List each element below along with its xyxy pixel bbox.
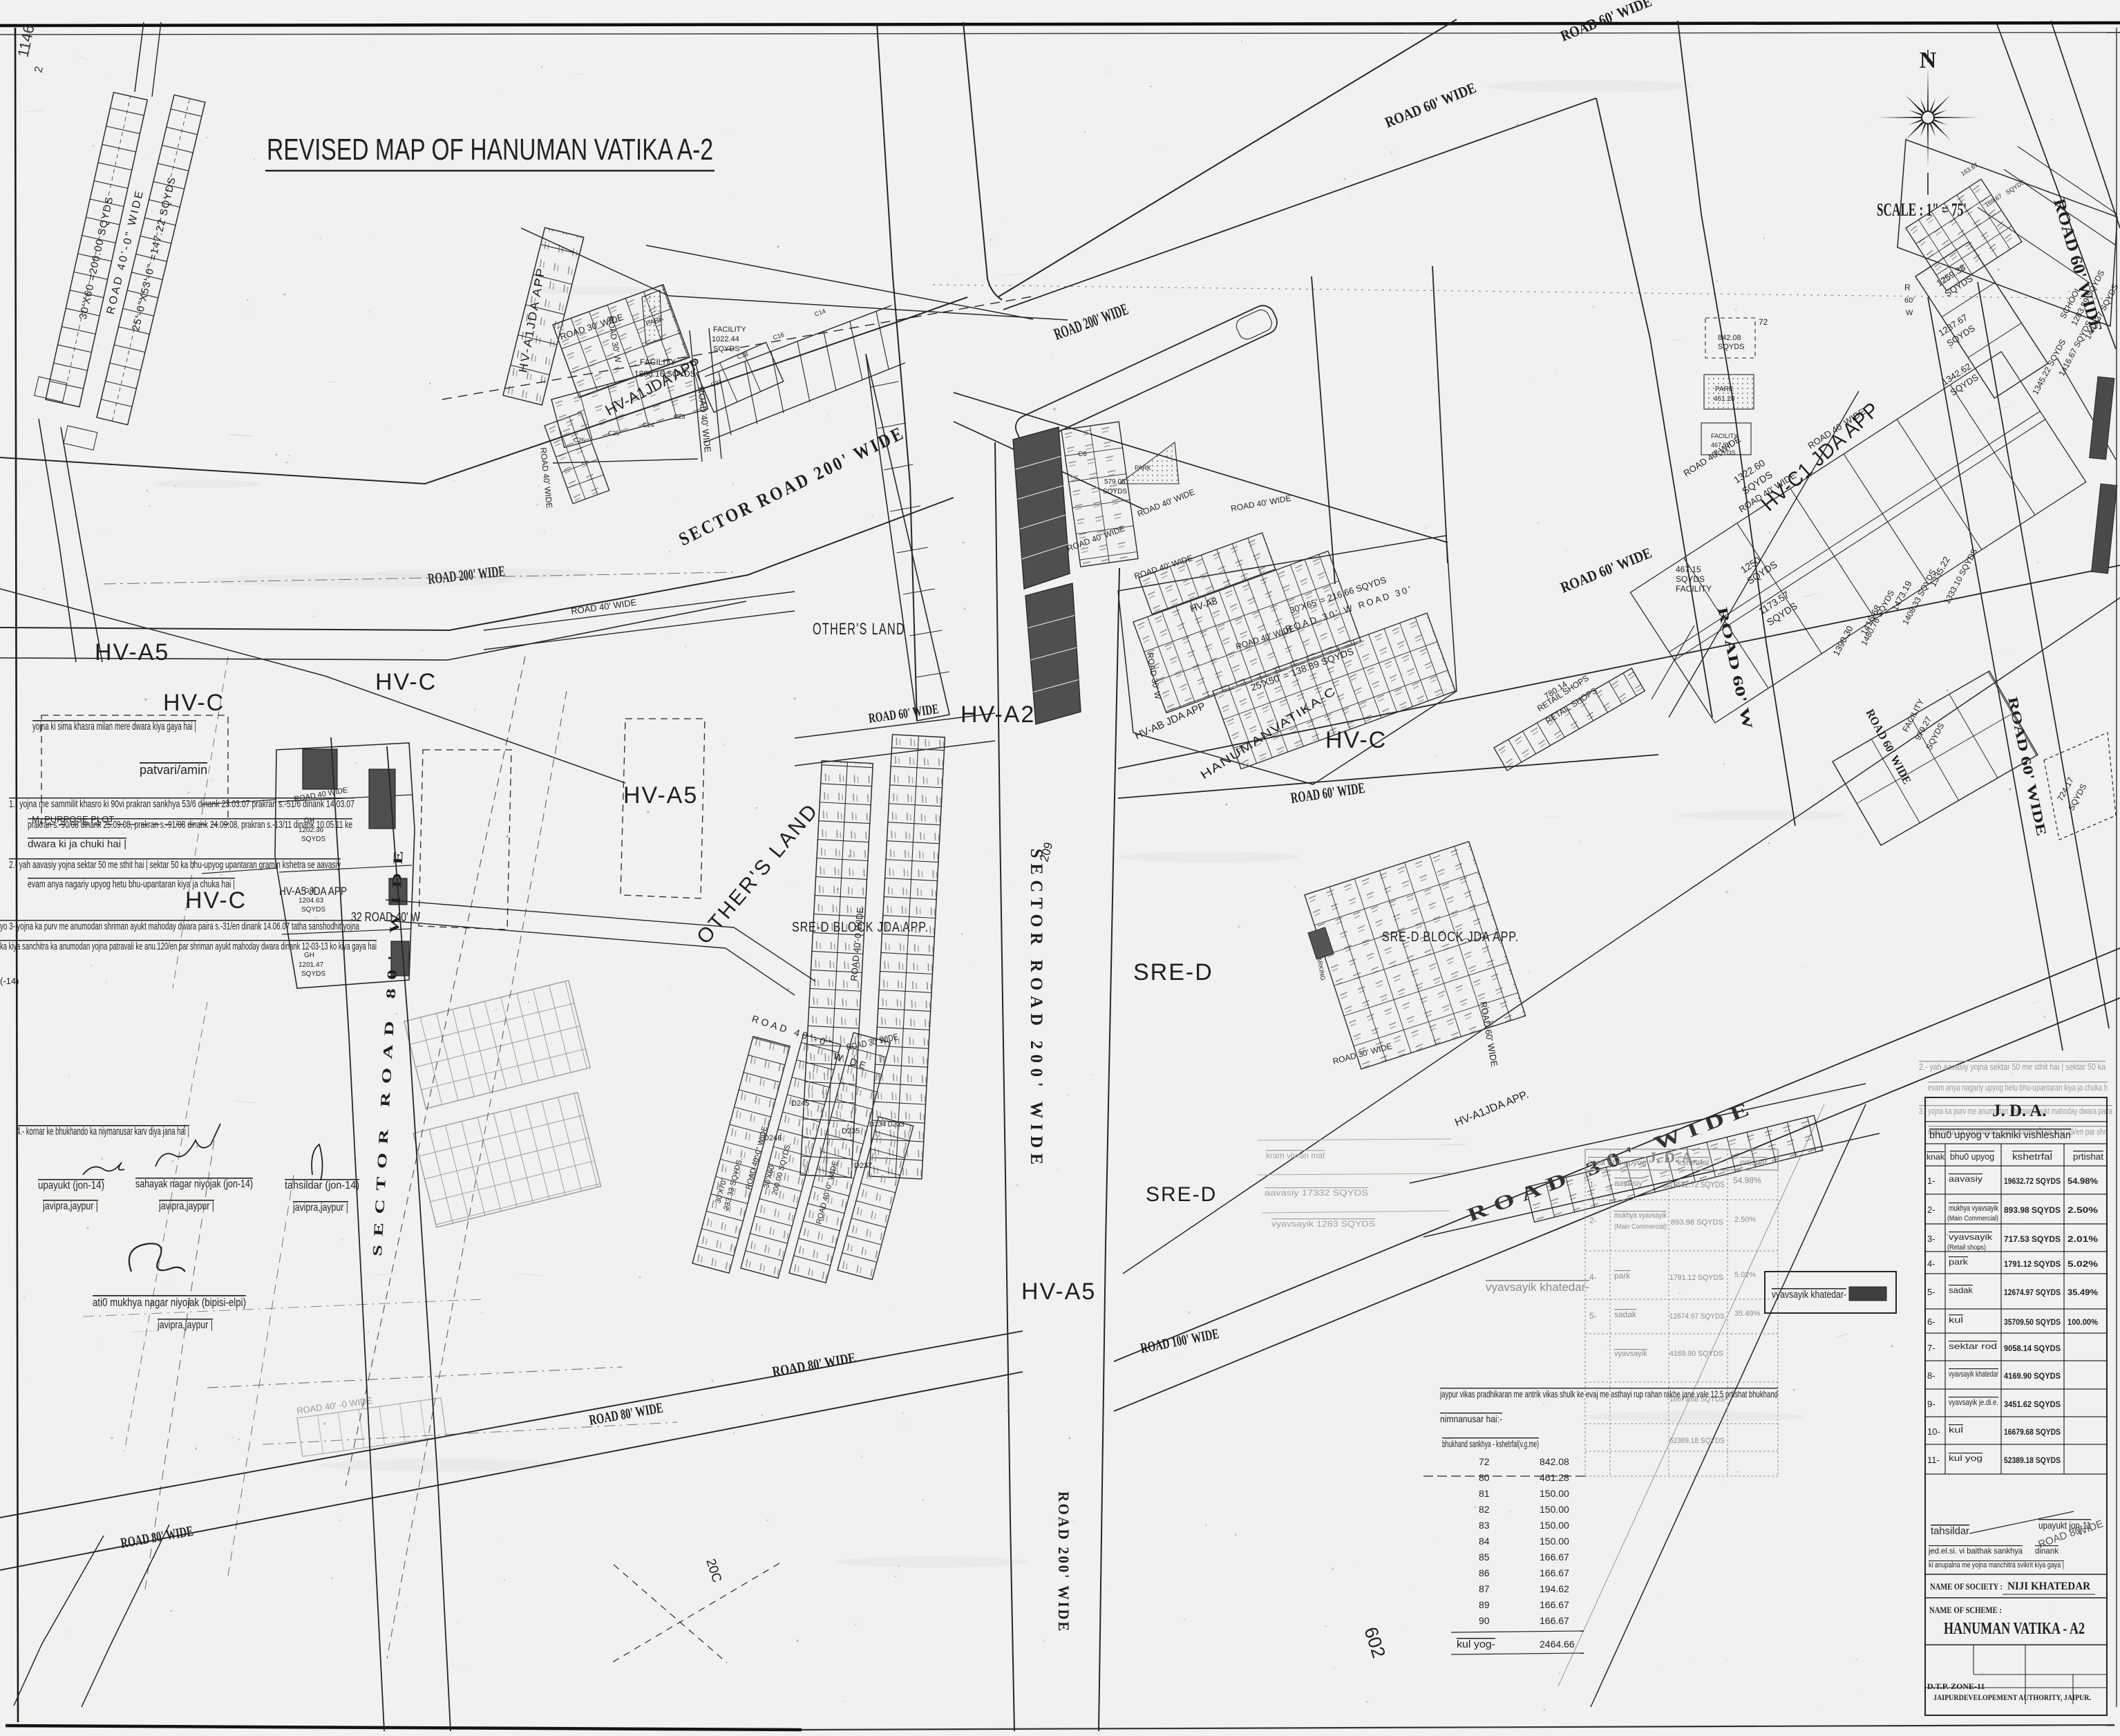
svg-text:2464.66: 2464.66 — [1540, 1639, 1575, 1650]
svg-text:(-14): (-14) — [0, 976, 19, 986]
svg-text:1022.44: 1022.44 — [712, 335, 739, 343]
svg-text:85: 85 — [1479, 1551, 1490, 1563]
svg-text:vyavsayik: vyavsayik — [1614, 1350, 1647, 1358]
svg-text:knak: knak — [1927, 1152, 1945, 1162]
svg-text:2.50%: 2.50% — [2067, 1205, 2098, 1215]
svg-text:sadak: sadak — [1614, 1310, 1637, 1319]
svg-text:54.98%: 54.98% — [1733, 1176, 1761, 1185]
svg-text:717.53 SQYDS: 717.53 SQYDS — [2004, 1234, 2061, 1244]
svg-text:NIJI KHATEDAR: NIJI KHATEDAR — [2007, 1581, 2090, 1592]
svg-text:89: 89 — [1479, 1599, 1490, 1610]
svg-text:D246: D246 — [764, 1134, 782, 1142]
svg-text:JAIPURDEVELOPEMENT AUTHORITY,: JAIPURDEVELOPEMENT AUTHORITY, JAIPUR. — [1933, 1692, 2091, 1702]
svg-text:knak bhu upyog: knak bhu upyog — [1588, 1158, 1647, 1167]
svg-text:5.02%: 5.02% — [1734, 1271, 1756, 1279]
svg-text:52389.18 SQYDS: 52389.18 SQYDS — [1669, 1437, 1725, 1445]
svg-text:kul: kul — [1949, 1315, 1963, 1325]
svg-text:ka kiya sanchitra ka anumodan: ka kiya sanchitra ka anumodan yojna patr… — [0, 941, 377, 952]
svg-text:FACILITY: FACILITY — [1676, 584, 1712, 594]
svg-text:dwara ki ja chuki hai |: dwara ki ja chuki hai | — [28, 838, 126, 850]
svg-text:prtishat: prtishat — [2073, 1151, 2103, 1162]
svg-text:D237: D237 — [854, 1162, 872, 1170]
svg-text:35709.50 SQYDS: 35709.50 SQYDS — [2004, 1317, 2061, 1327]
svg-text:NAME OF SCHEME :: NAME OF SCHEME : — [1929, 1605, 2002, 1615]
svg-text:150.00: 150.00 — [1540, 1504, 1569, 1515]
svg-text:SQYDS: SQYDS — [301, 906, 325, 914]
svg-text:kram vivran mat: kram vivran mat — [1266, 1151, 1325, 1160]
svg-text:(Main Commercial): (Main Commercial) — [1947, 1215, 1998, 1223]
svg-text:vyavsayik khatedar-: vyavsayik khatedar- — [1772, 1289, 1846, 1301]
svg-text:C24: C24 — [643, 422, 654, 428]
svg-text:javipra,jaypur |: javipra,jaypur | — [292, 1202, 348, 1214]
svg-text:jaypur vikas pradhikaran me an: jaypur vikas pradhikaran me antrik vikas… — [1439, 1388, 1778, 1399]
svg-text:vyavsayik khatedar: vyavsayik khatedar — [1949, 1369, 1998, 1379]
svg-text:6-: 6- — [1927, 1317, 1936, 1327]
svg-text:W: W — [1906, 309, 1913, 317]
svg-text:2-: 2- — [1589, 1216, 1597, 1225]
svg-text:javipra,jaypur |: javipra,jaypur | — [42, 1200, 98, 1212]
svg-text:150.00: 150.00 — [1540, 1536, 1569, 1547]
svg-text:javipra,jaypur |: javipra,jaypur | — [157, 1319, 213, 1331]
svg-text:tahsildar: tahsildar — [1931, 1525, 1969, 1537]
svg-text:SQYDS: SQYDS — [301, 970, 325, 978]
svg-text:kul yog: kul yog — [1949, 1453, 1982, 1463]
svg-text:HV-C: HV-C — [1325, 727, 1387, 753]
svg-text:5-: 5- — [1927, 1287, 1936, 1297]
svg-text:D245: D245 — [791, 1100, 809, 1108]
svg-text:sadak: sadak — [1949, 1285, 1974, 1295]
svg-text:C23: C23 — [674, 413, 685, 420]
svg-text:4169.90 SQYDS: 4169.90 SQYDS — [1669, 1350, 1723, 1358]
svg-text:dinank: dinank — [2035, 1546, 2059, 1556]
svg-text:87: 87 — [1479, 1583, 1490, 1594]
svg-text:1791.12 SQYDS: 1791.12 SQYDS — [1669, 1274, 1723, 1282]
svg-text:mukhya vyavsayik: mukhya vyavsayik — [1949, 1203, 1999, 1213]
svg-text:evam anya nagariy upyog hetu b: evam anya nagariy upyog hetu bhu-upantar… — [28, 878, 235, 890]
svg-text:842.08: 842.08 — [1718, 334, 1741, 342]
svg-text:461.28: 461.28 — [1714, 395, 1735, 403]
svg-text:N: N — [1920, 48, 1937, 73]
svg-text:893.98 SQYDS: 893.98 SQYDS — [1671, 1218, 1723, 1227]
svg-text:FACILITY: FACILITY — [713, 325, 746, 334]
svg-text:54.98%: 54.98% — [2067, 1176, 2098, 1186]
svg-text:2.- yah aavasiy yojna sektar 5: 2.- yah aavasiy yojna sektar 50 me sthit… — [1919, 1062, 2106, 1072]
svg-text:vyavsayik je.di.e.: vyavsayik je.di.e. — [1949, 1397, 1998, 1407]
svg-text:REVISED MAP OF HANUMAN VATIKA: REVISED MAP OF HANUMAN VATIKA A-2 — [267, 133, 713, 167]
svg-text:166.67: 166.67 — [1540, 1551, 1569, 1563]
svg-text:C26: C26 — [574, 437, 585, 444]
svg-text:yojna ki sima khasra milan mer: yojna ki sima khasra milan mere dwara ki… — [32, 721, 196, 733]
svg-text:3-: 3- — [1927, 1234, 1936, 1244]
svg-text:90: 90 — [1479, 1615, 1490, 1626]
svg-text:84: 84 — [1479, 1536, 1490, 1547]
svg-text:sektar rod: sektar rod — [1949, 1341, 1997, 1351]
svg-text:81: 81 — [1479, 1488, 1490, 1499]
svg-text:SQYDS: SQYDS — [1103, 488, 1127, 496]
svg-text:D.T.P. ZONE-11: D.T.P. ZONE-11 — [1927, 1681, 1985, 1691]
svg-text:SRE-D BLOCK JDA APP.: SRE-D BLOCK JDA APP. — [1382, 930, 1519, 945]
svg-text:82: 82 — [1479, 1504, 1490, 1515]
svg-text:kul yog-: kul yog- — [1457, 1639, 1495, 1650]
svg-text:83: 83 — [1479, 1520, 1490, 1531]
svg-text:park: park — [1949, 1257, 1969, 1267]
svg-text:ati0 mukhya nagar niyojak (bip: ati0 mukhya nagar niyojak (bipisi-elpi) — [93, 1296, 246, 1309]
svg-text:vyavsayik 1283 SQYDS: vyavsayik 1283 SQYDS — [1271, 1219, 1375, 1229]
svg-text:166.67: 166.67 — [1540, 1567, 1569, 1578]
svg-text:sahayak nagar niyojak (jon-14): sahayak nagar niyojak (jon-14) — [135, 1178, 253, 1190]
svg-text:prakran s.-90/08 dinank 25.09.: prakran s.-90/08 dinank 25.09.08, prakra… — [28, 819, 352, 831]
svg-text:166.67: 166.67 — [1540, 1615, 1569, 1626]
svg-text:4-: 4- — [1589, 1272, 1597, 1282]
svg-text:mukhya vyavsayik: mukhya vyavsayik — [1614, 1211, 1667, 1220]
svg-text:HV-A5: HV-A5 — [95, 639, 169, 666]
svg-text:10-: 10- — [1927, 1426, 1940, 1437]
svg-text:893.98 SQYDS: 893.98 SQYDS — [2004, 1205, 2061, 1215]
svg-text:vyavsayik khatedar-: vyavsayik khatedar- — [1486, 1281, 1589, 1294]
svg-text:12674.97 SQYDS: 12674.97 SQYDS — [1669, 1312, 1725, 1321]
svg-text:ROAD 200' WIDE: ROAD 200' WIDE — [1055, 1491, 1072, 1633]
svg-text:9-: 9- — [1927, 1399, 1936, 1409]
svg-text:60': 60' — [1904, 296, 1914, 305]
svg-text:evam anya nagariy upyog hetu b: evam anya nagariy upyog hetu bhu-upantar… — [1928, 1082, 2108, 1093]
svg-text:35.49%: 35.49% — [2067, 1287, 2098, 1297]
svg-text:4-: 4- — [1927, 1258, 1936, 1269]
svg-text:7-: 7- — [1927, 1343, 1936, 1353]
svg-text:150.00: 150.00 — [1540, 1520, 1569, 1531]
svg-text:vyavsayik: vyavsayik — [1949, 1232, 1993, 1242]
svg-text:194.62: 194.62 — [1540, 1583, 1569, 1594]
svg-text:OTHER'S LAND: OTHER'S LAND — [813, 620, 905, 639]
svg-text:D234 D233: D234 D233 — [869, 1121, 905, 1129]
svg-text:1791.12 SQYDS: 1791.12 SQYDS — [2004, 1259, 2061, 1269]
svg-text:5.02%: 5.02% — [2067, 1259, 2098, 1269]
svg-text:SRE-D: SRE-D — [1133, 959, 1213, 985]
svg-text:kshetrfal: kshetrfal — [1678, 1158, 1709, 1167]
svg-text:16679.68 SQYDS: 16679.68 SQYDS — [2004, 1427, 2061, 1437]
svg-text:javipra,jaypur |: javipra,jaypur | — [158, 1200, 214, 1212]
svg-text:aavasiy: aavasiy — [1614, 1178, 1643, 1188]
svg-text:kul: kul — [1949, 1425, 1963, 1435]
svg-text:tahsildar (jon-14): tahsildar (jon-14) — [285, 1180, 359, 1191]
svg-text:1.- yojna me sammilit khasro k: 1.- yojna me sammilit khasro ki 90vi pra… — [9, 798, 354, 810]
svg-text:bhu0 upyog: bhu0 upyog — [1950, 1151, 1994, 1162]
svg-text:D235: D235 — [842, 1127, 860, 1135]
svg-text:HV-C: HV-C — [375, 669, 437, 695]
svg-text:1-: 1- — [1589, 1180, 1597, 1189]
svg-text:842.08: 842.08 — [1540, 1456, 1569, 1467]
svg-text:GH: GH — [304, 952, 314, 959]
svg-text:19632.72 SQYDS: 19632.72 SQYDS — [1669, 1180, 1725, 1189]
svg-text:HV-A5: HV-A5 — [1021, 1279, 1096, 1305]
svg-text:72: 72 — [1759, 317, 1768, 327]
svg-text:SRE-D: SRE-D — [1146, 1183, 1217, 1206]
svg-text:HV-C: HV-C — [163, 690, 225, 716]
svg-text:52389.18 SQYDS: 52389.18 SQYDS — [2004, 1455, 2061, 1465]
svg-text:8-: 8- — [1927, 1370, 1936, 1381]
svg-text:5-: 5- — [1589, 1311, 1597, 1321]
svg-text:R: R — [1904, 283, 1911, 292]
svg-text:J. D. A.: J. D. A. — [1992, 1102, 2046, 1120]
svg-text:HV-A2: HV-A2 — [960, 701, 1035, 728]
svg-text:SECTOR ROAD 200' WIDE: SECTOR ROAD 200' WIDE — [1027, 849, 1045, 1170]
svg-text:patvari/amin: patvari/amin — [140, 763, 207, 777]
svg-text:HV-A5 JDA APP: HV-A5 JDA APP — [279, 885, 347, 898]
svg-text:C25: C25 — [608, 430, 620, 437]
svg-text:HV-C: HV-C — [185, 887, 247, 914]
svg-text:12674.97 SQYDS: 12674.97 SQYDS — [2004, 1287, 2061, 1297]
svg-text:SQYDS: SQYDS — [1676, 574, 1705, 584]
svg-text:NAME OF SOCIETY :: NAME OF SOCIETY : — [1930, 1581, 2003, 1592]
svg-text:PARK: PARK — [1715, 386, 1734, 393]
svg-text:35.49%: 35.49% — [1734, 1310, 1761, 1318]
svg-text:FACILITY: FACILITY — [640, 357, 676, 367]
svg-text:SQYDS: SQYDS — [301, 836, 325, 843]
svg-text:prtishat: prtishat — [1740, 1158, 1768, 1167]
svg-text:19632.72 SQYDS: 19632.72 SQYDS — [2004, 1176, 2061, 1186]
svg-text:C6: C6 — [1078, 451, 1087, 458]
svg-text:bhu0 upyog v takniki vishlesha: bhu0 upyog v takniki vishleshan — [1929, 1129, 2071, 1141]
svg-text:9058.14 SQYDS: 9058.14 SQYDS — [2004, 1343, 2061, 1353]
svg-text:32 ROAD 40' W: 32 ROAD 40' W — [351, 910, 420, 924]
svg-text:2.01%: 2.01% — [2067, 1234, 2098, 1244]
svg-text:bhukhand sankhya - kshetrfal(v: bhukhand sankhya - kshetrfal(v.g.me) — [1442, 1438, 1539, 1449]
svg-text:SQYDS: SQYDS — [1718, 343, 1745, 351]
svg-text:1-: 1- — [1927, 1176, 1936, 1186]
svg-text:3451.62 SQYDS: 3451.62 SQYDS — [2004, 1399, 2061, 1409]
svg-text:HV-A5: HV-A5 — [623, 782, 698, 809]
svg-text:100.00%: 100.00% — [2067, 1317, 2098, 1327]
svg-text:aavasiy 17332 SQYDS: aavasiy 17332 SQYDS — [1265, 1188, 1368, 1198]
svg-text:467.15: 467.15 — [1676, 565, 1701, 574]
svg-text:(Retail shops): (Retail shops) — [1947, 1244, 1986, 1252]
svg-text:2.50%: 2.50% — [1734, 1216, 1756, 1224]
svg-text:yo 3- yojna ka purv me anumoda: yo 3- yojna ka purv me anumodan shriman … — [0, 921, 359, 932]
svg-text:nimnanusar hai:-: nimnanusar hai:- — [1440, 1413, 1502, 1424]
svg-text:HANUMAN VATIKA - A2: HANUMAN VATIKA - A2 — [1944, 1620, 2085, 1638]
svg-text:kshetrfal: kshetrfal — [2012, 1151, 2052, 1162]
svg-text:(Main Commercial): (Main Commercial) — [1614, 1223, 1667, 1231]
svg-text:upayukt (jon-14): upayukt (jon-14) — [38, 1180, 104, 1191]
svg-text:150.00: 150.00 — [1540, 1488, 1569, 1499]
svg-text:aavasiy: aavasiy — [1949, 1174, 1982, 1184]
svg-text:72: 72 — [1479, 1456, 1490, 1467]
svg-text:1201.47: 1201.47 — [299, 961, 324, 969]
svg-text:461.28: 461.28 — [1540, 1472, 1569, 1483]
svg-text:166.67: 166.67 — [1540, 1599, 1569, 1610]
svg-text:4.- kornar ke bhukhando ka niy: 4.- kornar ke bhukhando ka niymanusar ka… — [17, 1126, 189, 1138]
svg-text:2.- yah aavasiy yojna sektar 5: 2.- yah aavasiy yojna sektar 50 me sthit… — [9, 859, 341, 871]
svg-text:ki anupalna me yojna manchitra: ki anupalna me yojna manchitra svikrit k… — [1929, 1561, 2064, 1569]
svg-text:1204.63: 1204.63 — [299, 897, 324, 905]
svg-text:86: 86 — [1479, 1567, 1490, 1578]
svg-text:PARK: PARK — [1135, 464, 1151, 471]
svg-text:4169.90 SQYDS: 4169.90 SQYDS — [2004, 1371, 2061, 1381]
svg-text:11-: 11- — [1927, 1455, 1940, 1465]
svg-text:80: 80 — [1479, 1472, 1490, 1483]
svg-text:park: park — [1614, 1271, 1631, 1281]
svg-text:jed.el.si. vi baithak sankhya: jed.el.si. vi baithak sankhya — [1928, 1546, 2023, 1556]
svg-text:2-: 2- — [1927, 1205, 1936, 1215]
